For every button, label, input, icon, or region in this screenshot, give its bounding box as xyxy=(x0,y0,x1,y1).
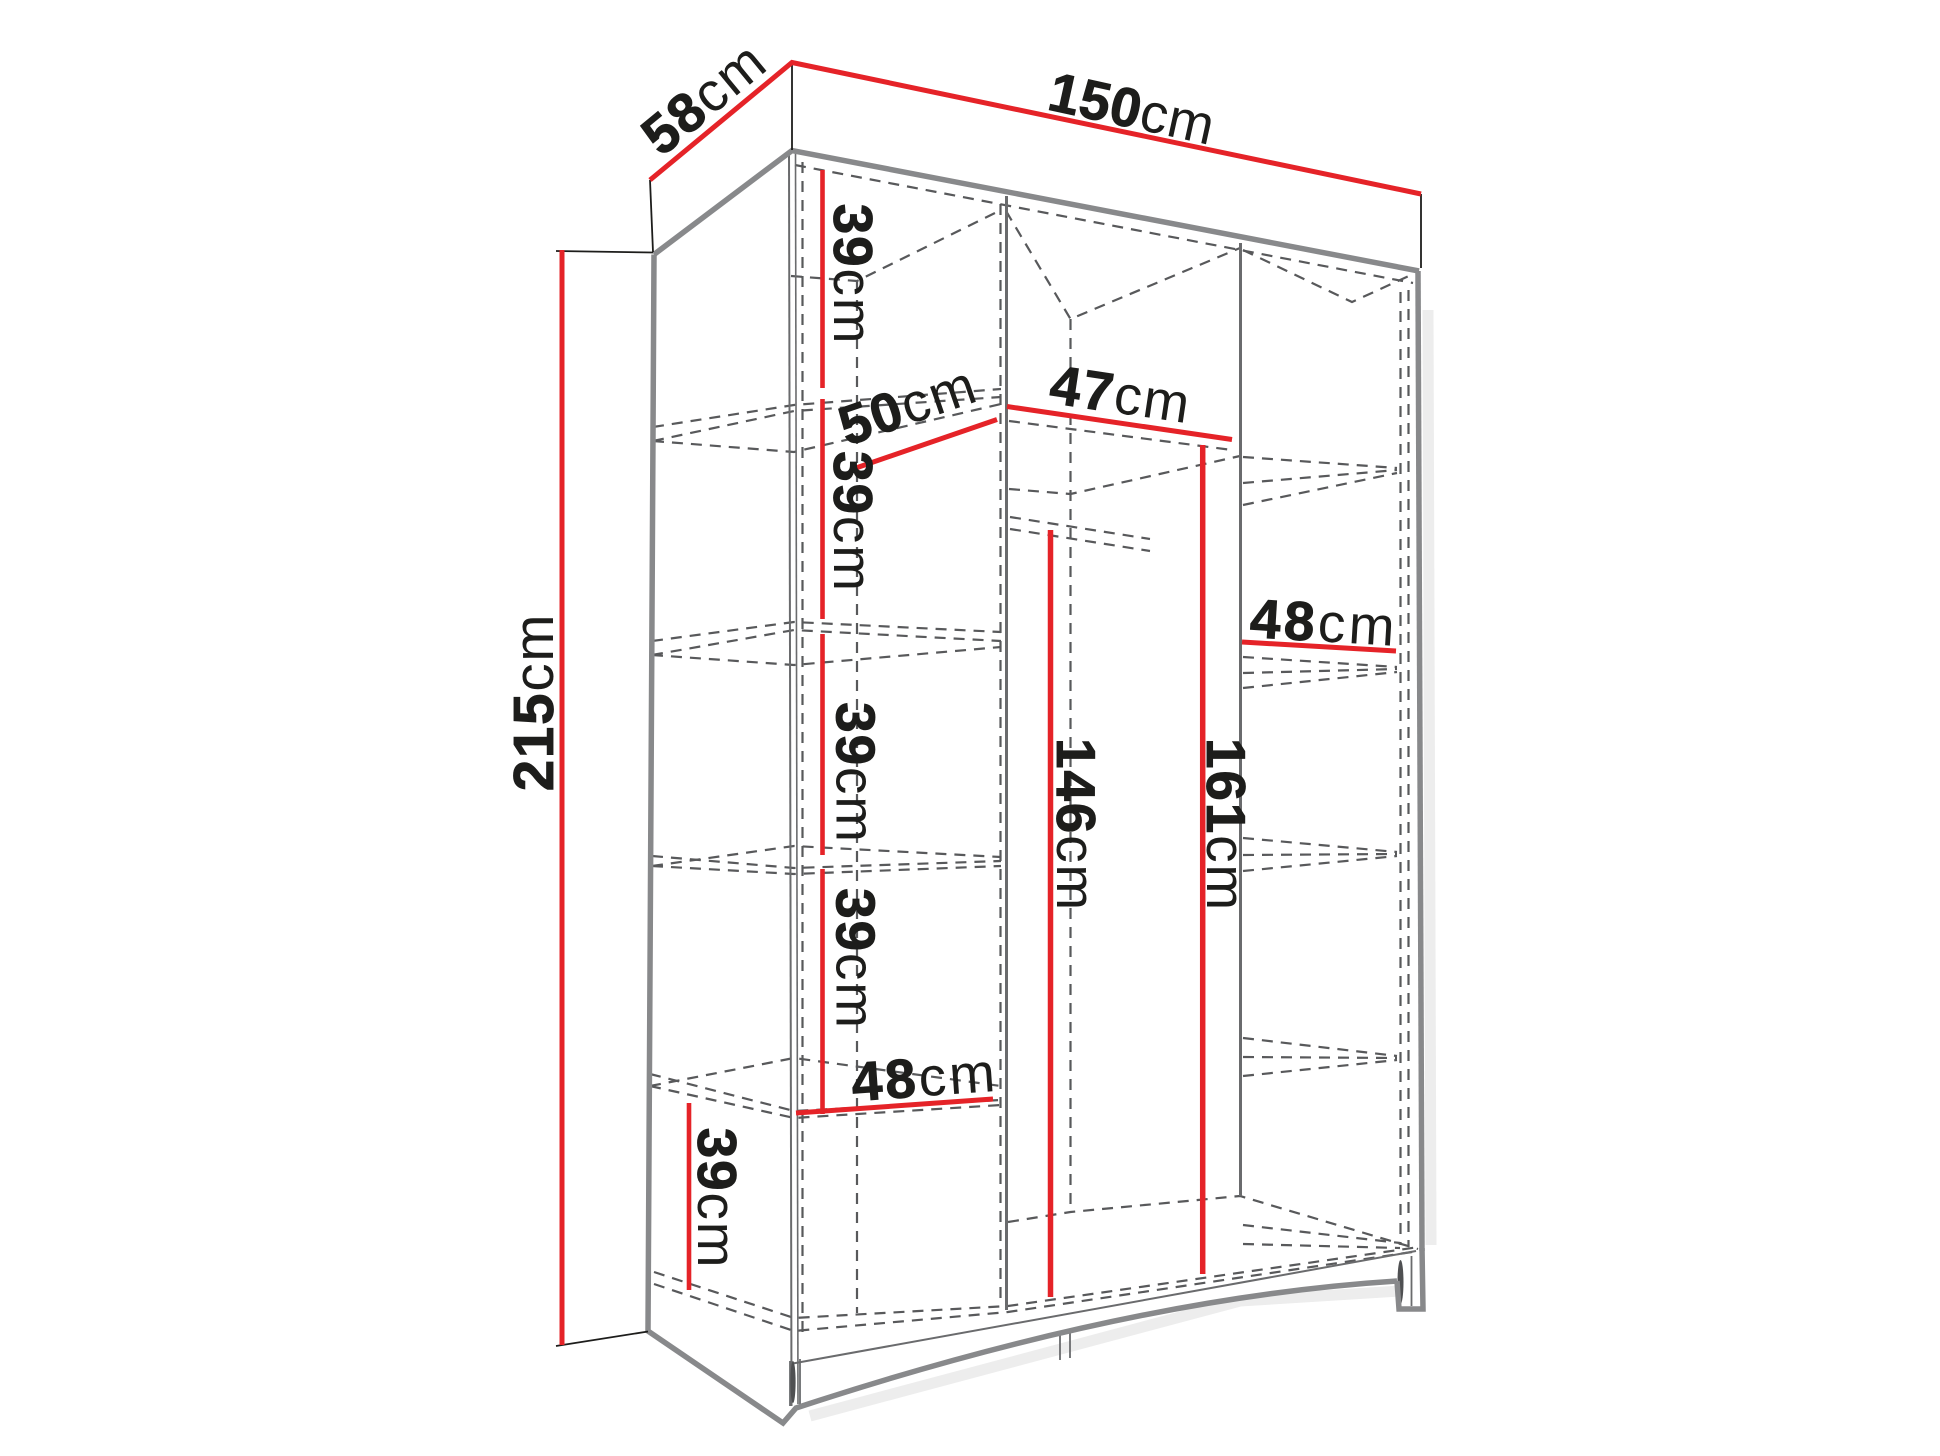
svg-text:39cm: 39cm xyxy=(825,888,887,1030)
svg-text:39cm: 39cm xyxy=(822,451,884,593)
svg-text:48cm: 48cm xyxy=(849,1041,999,1113)
svg-text:161cm: 161cm xyxy=(1195,738,1257,912)
svg-text:146cm: 146cm xyxy=(1045,738,1107,912)
svg-text:215cm: 215cm xyxy=(502,613,565,792)
svg-text:39cm: 39cm xyxy=(822,204,884,346)
svg-text:39cm: 39cm xyxy=(686,1128,748,1270)
svg-text:48cm: 48cm xyxy=(1248,587,1400,658)
svg-text:39cm: 39cm xyxy=(825,702,887,844)
